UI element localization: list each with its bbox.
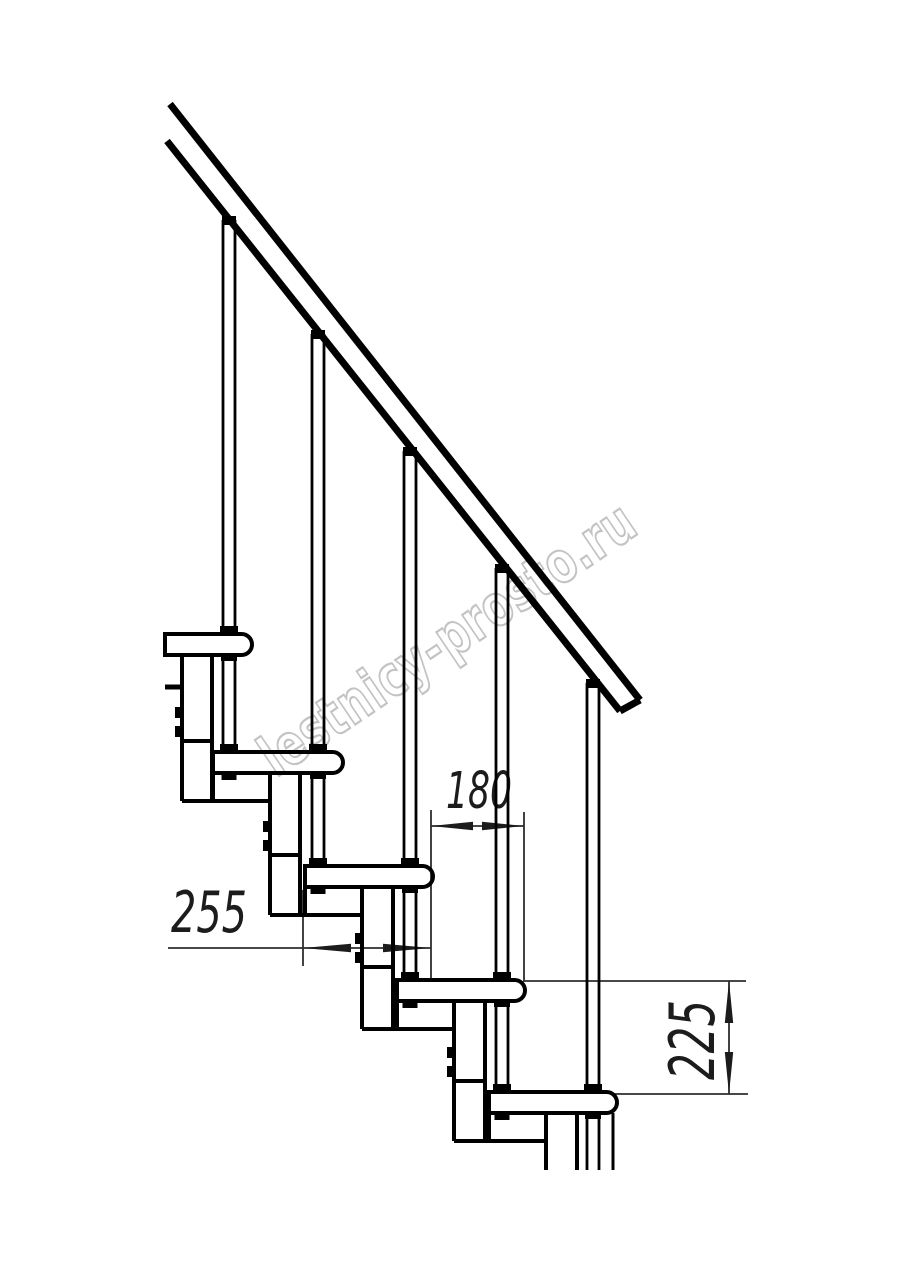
tube-top-cap <box>494 1000 510 1007</box>
baluster-5 <box>586 679 600 1092</box>
tube-5 <box>587 1113 599 1170</box>
tube-nut <box>403 1000 418 1008</box>
tread-5 <box>489 1092 617 1113</box>
tube-foot-cap <box>493 1084 511 1092</box>
tube-foot-cap <box>401 972 419 980</box>
tread-4 <box>397 980 525 1001</box>
tube-top-cap <box>402 886 418 893</box>
tread-1 <box>165 634 252 655</box>
tube-2 <box>312 773 324 866</box>
dim-255-label: 255 <box>171 880 247 946</box>
drawing-svg: lestnicy-prosto.ru 255 180 225 <box>0 0 914 1280</box>
tube-foot-cap <box>220 744 238 752</box>
dim-255-arrow-right <box>383 944 431 953</box>
bolt-icon <box>447 1047 454 1058</box>
dimension-180: 180 <box>431 762 524 981</box>
tube-nut <box>222 772 237 780</box>
bolt-icon <box>263 840 270 851</box>
tread-3 <box>305 866 433 887</box>
dim-180-label: 180 <box>446 762 512 821</box>
dim-180-arrow-left <box>431 822 473 830</box>
staircase-technical-drawing: lestnicy-prosto.ru 255 180 225 <box>0 0 914 1280</box>
dimension-225: 225 <box>523 981 748 1094</box>
tube-top-cap <box>221 654 237 661</box>
bolt-icon <box>447 1066 454 1077</box>
tube-top-cap <box>585 1112 601 1119</box>
handrail-end-cap <box>620 700 640 711</box>
dim-180-arrow-right <box>482 822 524 830</box>
baluster-1 <box>222 216 236 634</box>
dim-225-label: 225 <box>656 1000 729 1080</box>
bolt-icon <box>175 726 182 737</box>
bolt-icon <box>175 707 182 718</box>
dim-255-arrow-left <box>303 944 351 953</box>
tube-nut <box>495 1112 510 1120</box>
tube-foot-cap <box>309 858 327 866</box>
bolt-icon <box>355 952 362 963</box>
bolt-icon <box>263 821 270 832</box>
tube-1 <box>223 655 235 752</box>
tube-4 <box>496 1001 508 1092</box>
tube-3 <box>404 887 416 980</box>
bolt-icon <box>355 933 362 944</box>
tube-nut <box>311 886 326 894</box>
column-5-partial <box>546 1113 613 1170</box>
column-1 <box>165 655 270 801</box>
tube-top-cap <box>310 772 326 779</box>
